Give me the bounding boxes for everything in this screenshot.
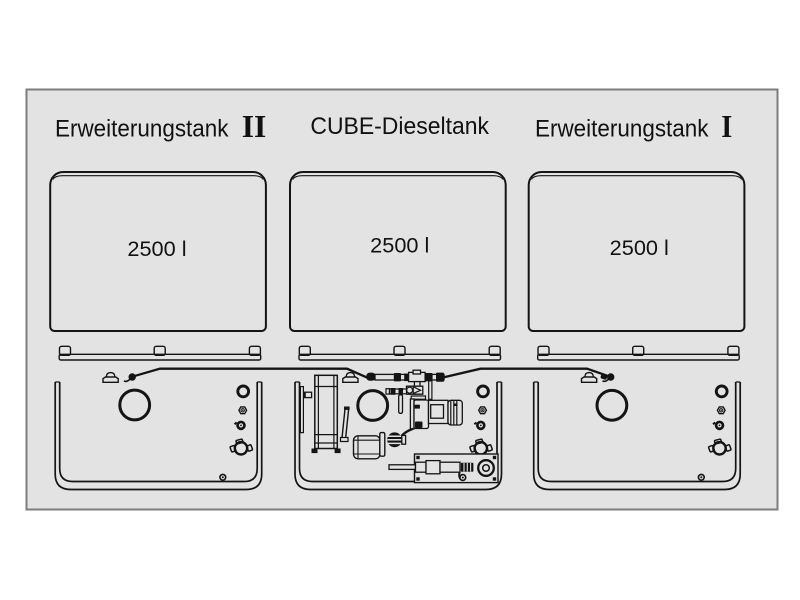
svg-text:II: II (242, 109, 267, 144)
svg-text:2500 l: 2500 l (127, 237, 186, 261)
svg-text:I: I (721, 109, 732, 144)
svg-text:Erweiterungstank: Erweiterungstank (535, 115, 709, 142)
svg-text:2500 l: 2500 l (610, 236, 669, 260)
svg-text:CUBE-Dieseltank: CUBE-Dieseltank (310, 113, 490, 140)
svg-text:Erweiterungstank: Erweiterungstank (55, 115, 229, 142)
svg-text:2500 l: 2500 l (370, 234, 429, 258)
